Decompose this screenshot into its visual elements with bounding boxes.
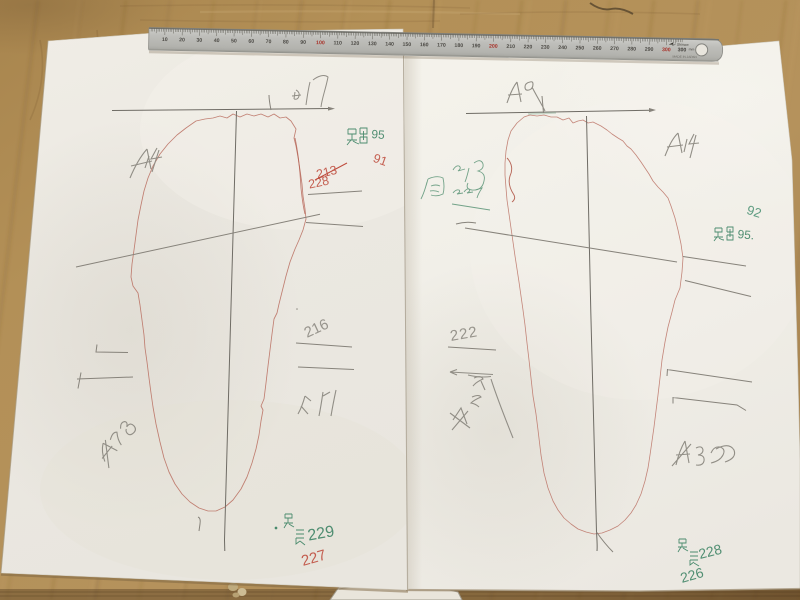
svg-text:140: 140 (385, 41, 394, 47)
svg-text:MADE IN JAPAN: MADE IN JAPAN (672, 55, 697, 60)
svg-text:150: 150 (403, 42, 412, 48)
svg-text:180: 180 (454, 43, 463, 49)
svg-text:95: 95 (371, 127, 386, 142)
svg-text:260: 260 (593, 46, 602, 52)
svg-text:mm: mm (689, 47, 695, 51)
svg-text:110: 110 (333, 40, 342, 46)
svg-text:30: 30 (196, 38, 202, 44)
svg-text:Shinwa: Shinwa (677, 43, 689, 47)
svg-text:90: 90 (300, 40, 306, 46)
svg-text:50: 50 (231, 38, 237, 44)
svg-text:200: 200 (489, 44, 498, 50)
svg-text:160: 160 (420, 42, 429, 48)
svg-text:300: 300 (678, 47, 687, 53)
svg-text:130: 130 (368, 41, 377, 47)
svg-text:230: 230 (541, 45, 550, 51)
svg-text:100: 100 (316, 40, 325, 46)
svg-text:300: 300 (662, 47, 671, 53)
svg-text:120: 120 (351, 41, 360, 47)
svg-text:40: 40 (214, 38, 220, 44)
svg-text:250: 250 (575, 45, 584, 51)
svg-text:190: 190 (472, 43, 481, 49)
svg-text:220: 220 (524, 44, 533, 50)
svg-text:60: 60 (248, 39, 254, 45)
svg-text:280: 280 (627, 46, 636, 52)
svg-text:240: 240 (558, 45, 567, 51)
svg-text:80: 80 (283, 39, 289, 45)
svg-text:210: 210 (506, 44, 515, 50)
svg-text:290: 290 (645, 47, 654, 53)
svg-text:10: 10 (162, 37, 168, 43)
svg-text:95.: 95. (737, 227, 755, 242)
svg-text:170: 170 (437, 43, 446, 49)
svg-text:70: 70 (266, 39, 272, 45)
svg-text:20: 20 (179, 37, 185, 43)
svg-text:270: 270 (610, 46, 619, 52)
